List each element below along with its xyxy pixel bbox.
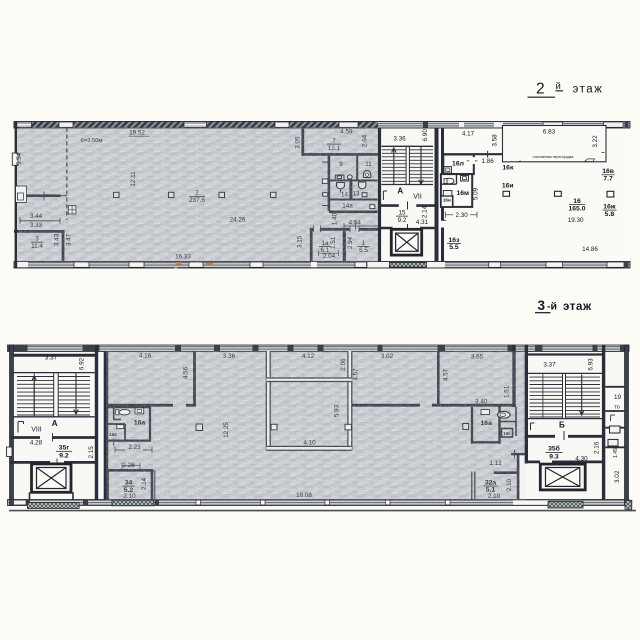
svg-text:VII: VII [413, 194, 422, 201]
svg-text:9.2: 9.2 [59, 453, 69, 460]
svg-text:16м: 16м [457, 190, 470, 197]
svg-text:19: 19 [614, 394, 622, 401]
svg-text:1.86: 1.86 [481, 158, 494, 165]
svg-text:1.45: 1.45 [613, 448, 619, 458]
svg-text:6.90: 6.90 [422, 129, 429, 142]
svg-text:3.22: 3.22 [592, 135, 599, 148]
svg-text:2.16: 2.16 [594, 441, 601, 454]
svg-text:165.0: 165.0 [568, 206, 585, 213]
svg-text:2.30: 2.30 [455, 212, 468, 219]
svg-text:16и: 16и [502, 183, 514, 190]
svg-text:35б: 35б [548, 445, 560, 453]
svg-text:16в: 16в [602, 168, 614, 175]
svg-text:3.37: 3.37 [543, 362, 556, 369]
svg-text:3.58: 3.58 [492, 134, 499, 147]
svg-text:9.3: 9.3 [549, 453, 559, 460]
svg-text:стеклянная перегородка: стеклянная перегородка [533, 155, 574, 159]
svg-text:3: 3 [538, 298, 546, 313]
svg-text:7.7: 7.7 [603, 176, 613, 183]
svg-text:этаж: этаж [573, 84, 604, 96]
svg-text:15: 15 [398, 210, 406, 217]
svg-text:16л: 16л [452, 161, 464, 168]
svg-text:2.15: 2.15 [88, 446, 95, 459]
svg-text:14.86: 14.86 [582, 246, 598, 253]
svg-text:4.28: 4.28 [30, 440, 43, 447]
svg-text:5.5: 5.5 [449, 244, 459, 251]
svg-text:35г: 35г [59, 445, 70, 452]
svg-text:16н: 16н [443, 198, 451, 203]
svg-text:16з: 16з [449, 237, 461, 244]
svg-text:16к: 16к [502, 165, 514, 172]
svg-text:то: то [614, 405, 620, 411]
svg-text:16: 16 [573, 198, 581, 205]
svg-text:2.14: 2.14 [421, 205, 428, 218]
svg-text:19.30: 19.30 [568, 217, 584, 224]
svg-text:2: 2 [536, 81, 545, 98]
svg-text:4.31: 4.31 [416, 219, 429, 226]
svg-text:9.2: 9.2 [398, 217, 407, 224]
svg-text:6.93: 6.93 [588, 358, 595, 371]
svg-text:3.37: 3.37 [45, 355, 58, 362]
svg-text:5.09: 5.09 [473, 187, 480, 200]
svg-text:А: А [397, 186, 403, 195]
svg-text:16ж: 16ж [603, 203, 616, 210]
svg-text:4.17: 4.17 [462, 130, 475, 137]
svg-text:4.30: 4.30 [575, 456, 588, 463]
svg-text:этаж: этаж [563, 301, 592, 313]
svg-text:5.8: 5.8 [605, 211, 615, 218]
svg-text:6.92: 6.92 [79, 357, 86, 370]
svg-text:-й: -й [547, 301, 557, 313]
svg-text:VIII: VIII [31, 427, 42, 434]
svg-text:6.83: 6.83 [543, 129, 556, 136]
svg-text:3.36: 3.36 [393, 135, 406, 142]
svg-text:А: А [52, 419, 58, 428]
svg-text:Б: Б [559, 420, 565, 429]
svg-text:3.02: 3.02 [614, 470, 621, 483]
